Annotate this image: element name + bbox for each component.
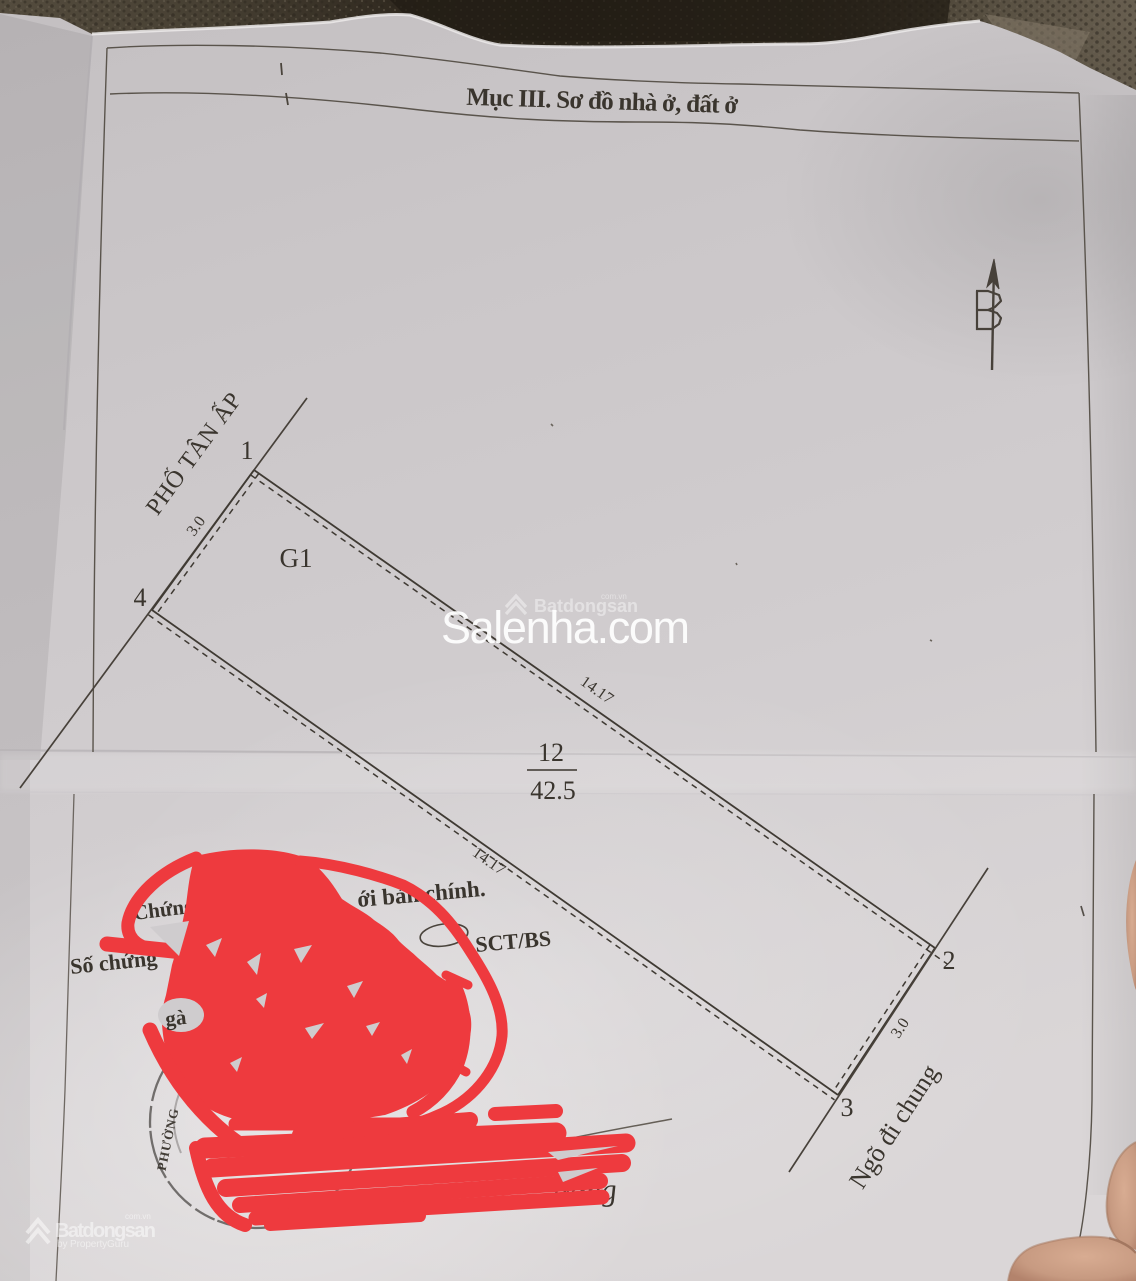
svg-text:by PropertyGuru: by PropertyGuru bbox=[57, 1239, 129, 1250]
svg-text:com.vn: com.vn bbox=[125, 1212, 151, 1221]
svg-text:2: 2 bbox=[943, 946, 956, 975]
svg-text:3: 3 bbox=[841, 1093, 854, 1122]
svg-text:gà: gà bbox=[164, 1005, 188, 1031]
svg-text:4: 4 bbox=[134, 583, 147, 612]
svg-text:G1: G1 bbox=[280, 543, 313, 573]
svg-text:1: 1 bbox=[241, 436, 254, 465]
svg-text:Salenha.com: Salenha.com bbox=[441, 602, 690, 653]
svg-text:12: 12 bbox=[538, 738, 564, 767]
svg-text:42.5: 42.5 bbox=[530, 776, 576, 805]
svg-text:com.vn: com.vn bbox=[601, 592, 627, 601]
